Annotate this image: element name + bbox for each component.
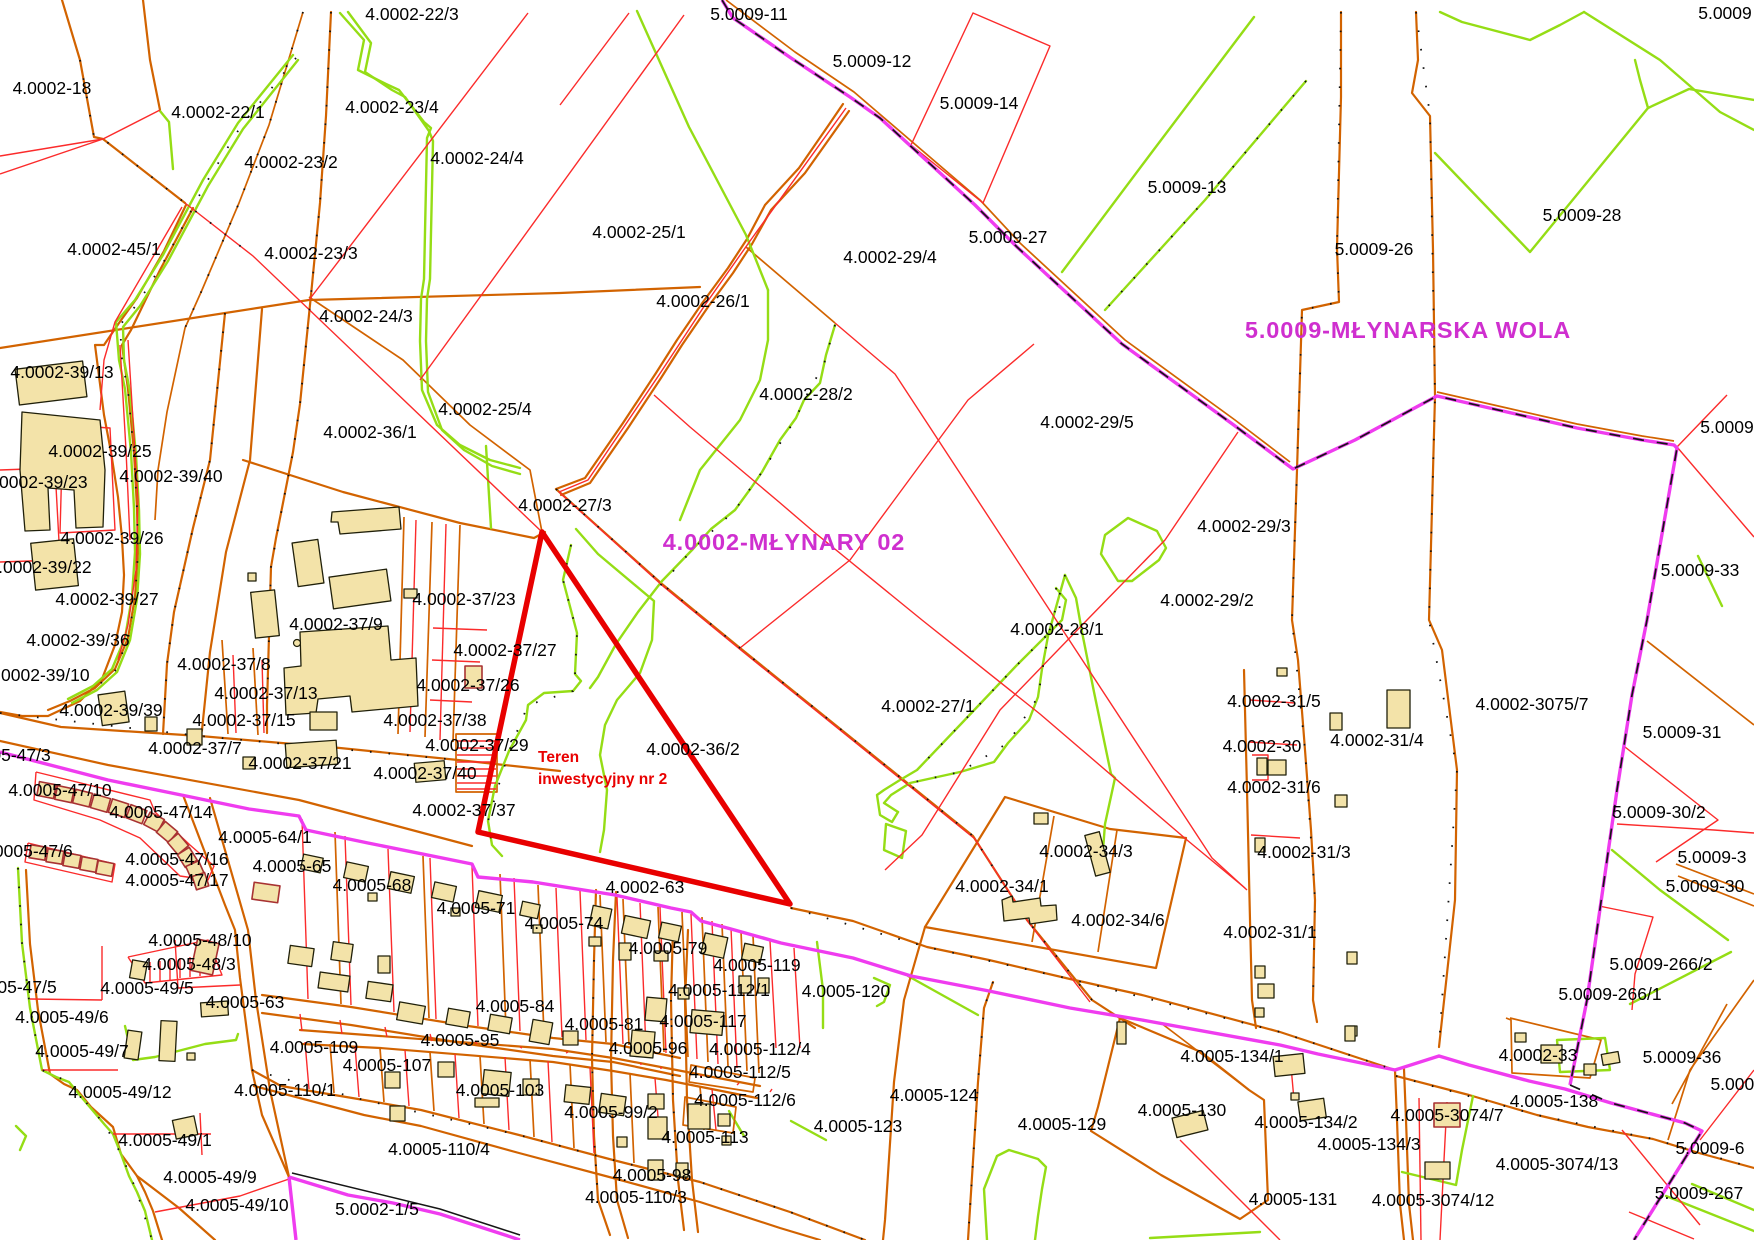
svg-text:4.0002-23/3: 4.0002-23/3 [264,243,357,263]
svg-text:4.0005-3074/13: 4.0005-3074/13 [1496,1154,1619,1174]
svg-text:4.0005-49/9: 4.0005-49/9 [163,1167,256,1187]
svg-text:4.0005-134/1: 4.0005-134/1 [1180,1046,1283,1066]
svg-text:4.0005-49/6: 4.0005-49/6 [15,1007,108,1027]
svg-text:5.0009-30/2: 5.0009-30/2 [1612,802,1705,822]
svg-text:4.0002-29/5: 4.0002-29/5 [1040,412,1133,432]
svg-text:4.0002-3075/7: 4.0002-3075/7 [1476,694,1589,714]
svg-text:4.0002-39/39: 4.0002-39/39 [59,700,162,720]
svg-text:4.0002-63: 4.0002-63 [606,877,685,897]
svg-text:4.0002-23/4: 4.0002-23/4 [345,97,439,117]
svg-text:4.0002-37/8: 4.0002-37/8 [177,654,270,674]
svg-text:4.0002-39/13: 4.0002-39/13 [10,362,113,382]
svg-text:4.0002-45/1: 4.0002-45/1 [67,239,160,259]
svg-text:4.0002-24/4: 4.0002-24/4 [430,148,524,168]
svg-text:4.0002-31/6: 4.0002-31/6 [1227,777,1320,797]
svg-text:4.0005-107: 4.0005-107 [343,1055,432,1075]
svg-text:4.0005-120: 4.0005-120 [802,981,891,1001]
svg-text:4.0005-3074/7: 4.0005-3074/7 [1391,1105,1504,1125]
svg-text:inwestycyjny nr 2: inwestycyjny nr 2 [538,771,667,788]
svg-text:4.0002-37/40: 4.0002-37/40 [373,763,476,783]
svg-text:4.0002-29/4: 4.0002-29/4 [843,247,937,267]
svg-text:4.0002-MŁYNARY 02: 4.0002-MŁYNARY 02 [663,529,906,555]
svg-text:5.0009: 5.0009 [1698,3,1752,23]
svg-text:4.0002-30: 4.0002-30 [1223,736,1302,756]
svg-text:5.0009-6: 5.0009-6 [1675,1138,1744,1158]
svg-text:4.0005-110/3: 4.0005-110/3 [585,1187,687,1207]
svg-text:4.0005-49/7: 4.0005-49/7 [35,1041,128,1061]
svg-text:4.0005-64/1: 4.0005-64/1 [218,827,311,847]
svg-text:4.0002-27/3: 4.0002-27/3 [518,495,611,515]
svg-text:4.0002-36/1: 4.0002-36/1 [323,422,416,442]
svg-text:4.0002-39/27: 4.0002-39/27 [55,589,158,609]
svg-text:4.0002-31/3: 4.0002-31/3 [1257,842,1350,862]
svg-text:4.0002-39/40: 4.0002-39/40 [119,466,222,486]
svg-text:4.0002-37/23: 4.0002-37/23 [412,589,515,609]
svg-text:4.0005-63: 4.0005-63 [206,992,285,1012]
svg-text:4.0002-29/2: 4.0002-29/2 [1160,590,1253,610]
svg-text:4.0005-47/10: 4.0005-47/10 [8,780,111,800]
svg-text:5.0009-266/1: 5.0009-266/1 [1558,984,1661,1004]
svg-text:4.0002-37/15: 4.0002-37/15 [192,710,295,730]
svg-text:4.0002-23/2: 4.0002-23/2 [244,152,337,172]
svg-text:4.0002-28/1: 4.0002-28/1 [1010,619,1103,639]
svg-text:5.0009-27: 5.0009-27 [969,227,1048,247]
svg-text:4.0005-47/14: 4.0005-47/14 [109,802,212,822]
svg-text:4.0005-131: 4.0005-131 [1249,1189,1338,1209]
svg-text:4.0005-81: 4.0005-81 [565,1014,644,1034]
svg-text:4.0005-3074/12: 4.0005-3074/12 [1372,1190,1495,1210]
svg-text:4.0005-49/12: 4.0005-49/12 [68,1082,171,1102]
svg-text:4.0002-37/21: 4.0002-37/21 [248,753,351,773]
svg-text:4.0005-74: 4.0005-74 [525,913,604,933]
svg-text:4.0005-49/5: 4.0005-49/5 [100,978,193,998]
svg-text:4.0005-99/2: 4.0005-99/2 [564,1102,657,1122]
svg-text:4.0005-134/3: 4.0005-134/3 [1317,1134,1420,1154]
svg-text:4.0005-98: 4.0005-98 [613,1165,692,1185]
svg-text:4.0002-39/36: 4.0002-39/36 [26,630,129,650]
svg-text:4.0002-34/6: 4.0002-34/6 [1071,910,1164,930]
svg-text:4.0005-68: 4.0005-68 [333,875,412,895]
svg-text:5.0009-28: 5.0009-28 [1543,205,1622,225]
svg-text:4.0002-37/13: 4.0002-37/13 [214,683,317,703]
svg-text:4.0005-112/1: 4.0005-112/1 [668,980,770,1000]
svg-text:5.0009-11: 5.0009-11 [710,4,788,24]
svg-text:4.0005-129: 4.0005-129 [1018,1114,1107,1134]
svg-text:4.0005-124: 4.0005-124 [890,1085,979,1105]
svg-text:4.0005-112/6: 4.0005-112/6 [694,1090,796,1110]
svg-text:4.0005-138: 4.0005-138 [1510,1091,1599,1111]
svg-text:4.0002-37/27: 4.0002-37/27 [453,640,556,660]
svg-text:4.0005-49/1: 4.0005-49/1 [118,1130,211,1150]
svg-text:4.0002-31/1: 4.0002-31/1 [1223,922,1316,942]
svg-text:4.0005-130: 4.0005-130 [1138,1100,1227,1120]
svg-text:4.0002-37/7: 4.0002-37/7 [148,738,241,758]
svg-text:4.0005-48/3: 4.0005-48/3 [142,954,235,974]
svg-text:4.0002-36/2: 4.0002-36/2 [646,739,739,759]
svg-text:4.0002-22/3: 4.0002-22/3 [365,4,458,24]
svg-text:4.0005-117: 4.0005-117 [659,1011,746,1031]
svg-text:5.0009-30: 5.0009-30 [1666,876,1745,896]
svg-text:4.0005-47/6: 4.0005-47/6 [0,841,73,861]
svg-text:4.0002-27/1: 4.0002-27/1 [881,696,974,716]
svg-text:4.0005-47/5: 4.0005-47/5 [0,977,57,997]
svg-text:4.0002-33: 4.0002-33 [1499,1045,1578,1065]
svg-text:4.0005-119: 4.0005-119 [713,955,800,975]
svg-text:4.0005-47/16: 4.0005-47/16 [125,849,228,869]
svg-text:4.0005-109: 4.0005-109 [270,1037,359,1057]
svg-text:4.0002-31/5: 4.0002-31/5 [1227,691,1320,711]
svg-text:5.0009: 5.0009 [1700,417,1754,437]
svg-text:4.0005-95: 4.0005-95 [421,1030,500,1050]
svg-text:4.0005-65: 4.0005-65 [253,856,332,876]
svg-text:5.0009-31: 5.0009-31 [1643,722,1722,742]
svg-text:5.0009-13: 5.0009-13 [1148,177,1227,197]
svg-text:5.0009-3: 5.0009-3 [1677,847,1746,867]
svg-text:4.0005-84: 4.0005-84 [476,996,555,1016]
svg-text:4.0002-31/4: 4.0002-31/4 [1330,730,1424,750]
svg-text:5.0009-26: 5.0009-26 [1335,239,1414,259]
svg-text:4.0002-39/25: 4.0002-39/25 [48,441,151,461]
svg-text:Teren: Teren [538,749,579,766]
svg-text:4.0002-39/10: 4.0002-39/10 [0,665,90,685]
svg-text:4.0005-112/5: 4.0005-112/5 [689,1062,791,1082]
svg-text:4.0005-49/10: 4.0005-49/10 [185,1195,288,1215]
svg-text:4.0005-112/4: 4.0005-112/4 [709,1039,811,1059]
svg-text:4.0005-134/2: 4.0005-134/2 [1254,1112,1357,1132]
svg-text:5.0009-33: 5.0009-33 [1661,560,1740,580]
svg-text:4.0002-37/37: 4.0002-37/37 [412,800,515,820]
svg-text:4.0002-39/26: 4.0002-39/26 [60,528,163,548]
svg-text:4.0002-25/1: 4.0002-25/1 [592,222,685,242]
svg-text:5.0009-267: 5.0009-267 [1655,1183,1744,1203]
svg-text:4.0005-47/3: 4.0005-47/3 [0,745,51,765]
svg-text:4.0002-37/29: 4.0002-37/29 [425,735,528,755]
svg-text:4.0005-47/17: 4.0005-47/17 [125,870,228,890]
svg-text:4.0005-103: 4.0005-103 [456,1080,545,1100]
svg-text:4.0002-25/4: 4.0002-25/4 [438,399,532,419]
svg-text:4.0005-48/10: 4.0005-48/10 [148,930,251,950]
svg-text:4.0002-39/23: 4.0002-39/23 [0,472,88,492]
svg-text:4.0002-28/2: 4.0002-28/2 [759,384,852,404]
svg-text:4.0002-18: 4.0002-18 [13,78,92,98]
svg-text:4.0002-29/3: 4.0002-29/3 [1197,516,1290,536]
svg-text:4.0002-22/1: 4.0002-22/1 [171,102,264,122]
svg-text:5.0009-14: 5.0009-14 [940,93,1019,113]
svg-text:4.0005-123: 4.0005-123 [814,1116,903,1136]
svg-text:4.0002-34/3: 4.0002-34/3 [1039,841,1132,861]
svg-text:4.0005-71: 4.0005-71 [437,898,516,918]
svg-text:4.0002-24/3: 4.0002-24/3 [319,306,412,326]
svg-text:4.0002-37/9: 4.0002-37/9 [289,614,382,634]
svg-text:5.0009-12: 5.0009-12 [833,51,912,71]
svg-text:4.0002-39/22: 4.0002-39/22 [0,557,92,577]
svg-text:4.0005-110/4: 4.0005-110/4 [388,1139,490,1159]
svg-text:4.0005-79: 4.0005-79 [629,938,708,958]
svg-text:5.0009-MŁYNARSKA WOLA: 5.0009-MŁYNARSKA WOLA [1245,317,1571,343]
svg-text:5.0009-266/2: 5.0009-266/2 [1609,954,1712,974]
svg-text:4.0002-37/26: 4.0002-37/26 [416,675,519,695]
svg-text:5.0002-1/5: 5.0002-1/5 [335,1199,419,1219]
svg-text:5.0009-3: 5.0009-3 [1710,1074,1754,1094]
svg-text:5.0009-36: 5.0009-36 [1643,1047,1722,1067]
svg-text:4.0002-26/1: 4.0002-26/1 [656,291,749,311]
svg-text:4.0005-113: 4.0005-113 [661,1127,748,1147]
svg-text:4.0005-110/1: 4.0005-110/1 [234,1080,336,1100]
svg-text:4.0005-96: 4.0005-96 [609,1038,688,1058]
svg-text:4.0002-37/38: 4.0002-37/38 [383,710,486,730]
svg-text:4.0002-34/1: 4.0002-34/1 [955,876,1048,896]
